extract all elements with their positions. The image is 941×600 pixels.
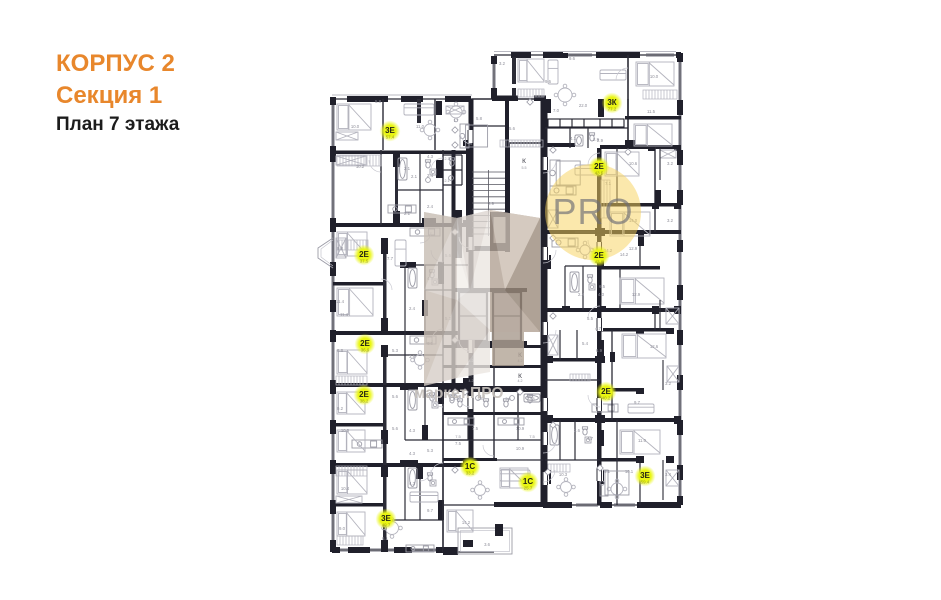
svg-text:25.7: 25.7 — [524, 486, 533, 491]
svg-text:4.2: 4.2 — [469, 379, 474, 383]
svg-text:2.1: 2.1 — [445, 157, 450, 161]
svg-text:37.5: 37.5 — [360, 259, 369, 264]
svg-text:2.3: 2.3 — [578, 292, 585, 297]
svg-text:3.2: 3.2 — [499, 61, 506, 66]
svg-text:9.0: 9.0 — [339, 526, 346, 531]
svg-text:5.4: 5.4 — [582, 341, 589, 346]
svg-text:9.6: 9.6 — [569, 56, 576, 61]
svg-text:6.5: 6.5 — [599, 284, 606, 289]
svg-text:10.5: 10.5 — [341, 428, 350, 433]
svg-text:5.3: 5.3 — [427, 448, 434, 453]
svg-text:10.2: 10.2 — [356, 164, 365, 169]
svg-text:2.1: 2.1 — [404, 166, 411, 171]
svg-text:К: К — [522, 158, 526, 165]
svg-text:2.6: 2.6 — [574, 428, 581, 433]
svg-text:10.4: 10.4 — [341, 486, 350, 491]
svg-text:3.2: 3.2 — [667, 161, 674, 166]
svg-text:6.1: 6.1 — [604, 469, 611, 474]
svg-text:9.8: 9.8 — [337, 246, 344, 251]
svg-text:43.5: 43.5 — [595, 171, 604, 176]
svg-text:5.6: 5.6 — [509, 126, 516, 131]
svg-text:4.3: 4.3 — [409, 481, 416, 486]
svg-text:План 7 этажа: План 7 этажа — [56, 114, 180, 135]
svg-text:14.2: 14.2 — [620, 252, 629, 257]
svg-text:7.5: 7.5 — [455, 434, 461, 439]
svg-text:3.2: 3.2 — [667, 218, 674, 223]
svg-text:10.1: 10.1 — [625, 469, 634, 474]
svg-text:2.4: 2.4 — [427, 204, 434, 209]
svg-text:10.3: 10.3 — [559, 472, 568, 477]
svg-text:49.7: 49.7 — [382, 523, 391, 528]
svg-text:7.5: 7.5 — [472, 426, 479, 431]
svg-text:PRO: PRO — [552, 191, 633, 232]
svg-text:7.5: 7.5 — [529, 434, 535, 439]
svg-text:4.7: 4.7 — [587, 436, 594, 441]
svg-text:22.0: 22.0 — [579, 103, 588, 108]
svg-text:10.9: 10.9 — [516, 426, 525, 431]
svg-text:10.0: 10.0 — [650, 74, 659, 79]
svg-text:17: 17 — [454, 118, 459, 123]
svg-text:2.4: 2.4 — [427, 173, 434, 178]
svg-text:9.7: 9.7 — [634, 400, 641, 405]
svg-text:4.3: 4.3 — [427, 154, 434, 159]
svg-text:4.7: 4.7 — [595, 326, 602, 331]
svg-text:10.9: 10.9 — [516, 446, 525, 451]
svg-text:2.1: 2.1 — [445, 179, 450, 183]
svg-text:2.4: 2.4 — [409, 306, 416, 311]
svg-text:5.6: 5.6 — [392, 426, 399, 431]
svg-text:11.0: 11.0 — [416, 124, 425, 129]
svg-text:7.7: 7.7 — [387, 256, 394, 261]
svg-text:2.1: 2.1 — [404, 211, 411, 216]
svg-text:3.4: 3.4 — [665, 472, 672, 477]
svg-text:9.7: 9.7 — [427, 508, 434, 513]
svg-text:36.9: 36.9 — [361, 348, 370, 353]
svg-text:3.9: 3.9 — [409, 354, 416, 359]
svg-text:5.3: 5.3 — [392, 348, 399, 353]
svg-text:11.5: 11.5 — [647, 109, 656, 114]
svg-text:77.2: 77.2 — [608, 107, 617, 112]
svg-text:12.6: 12.6 — [650, 344, 659, 349]
svg-text:11.4: 11.4 — [340, 312, 349, 317]
svg-text:38.2: 38.2 — [360, 399, 369, 404]
svg-text:9.2: 9.2 — [337, 406, 344, 411]
svg-text:40.2: 40.2 — [602, 396, 611, 401]
svg-text:2.9: 2.9 — [488, 201, 495, 206]
svg-text:11.4: 11.4 — [336, 299, 345, 304]
svg-text:5.8: 5.8 — [476, 116, 483, 121]
svg-text:7.0: 7.0 — [553, 108, 560, 113]
svg-text:5.8: 5.8 — [375, 99, 382, 104]
svg-text:57.4: 57.4 — [386, 135, 395, 140]
svg-text:4.3: 4.3 — [409, 428, 416, 433]
svg-text:33.2: 33.2 — [466, 471, 475, 476]
svg-text:43.9: 43.9 — [595, 260, 604, 265]
svg-text:3.2: 3.2 — [665, 381, 672, 386]
svg-text:маркет.ПРО: маркет.ПРО — [414, 385, 503, 402]
svg-text:5.5: 5.5 — [522, 166, 527, 170]
svg-text:2.1: 2.1 — [411, 174, 418, 179]
svg-text:4.2: 4.2 — [518, 379, 523, 383]
svg-text:10.0: 10.0 — [351, 124, 360, 129]
svg-text:КОРПУС 2: КОРПУС 2 — [56, 50, 175, 77]
svg-text:6.9: 6.9 — [596, 348, 603, 353]
svg-text:2.9: 2.9 — [597, 138, 604, 143]
svg-text:4.3: 4.3 — [598, 292, 605, 297]
svg-text:7.5: 7.5 — [455, 441, 462, 446]
svg-text:6.1: 6.1 — [382, 536, 389, 541]
svg-text:10.6: 10.6 — [629, 161, 638, 166]
svg-text:9.6: 9.6 — [545, 79, 552, 84]
svg-text:11.0: 11.0 — [638, 438, 647, 443]
svg-text:4.1: 4.1 — [570, 136, 577, 141]
svg-text:5.5: 5.5 — [587, 316, 594, 321]
svg-text:59.4: 59.4 — [641, 480, 650, 485]
svg-text:Секция 1: Секция 1 — [56, 82, 162, 109]
svg-text:12.9: 12.9 — [629, 246, 638, 251]
svg-text:12.9: 12.9 — [632, 292, 641, 297]
svg-text:9.8: 9.8 — [337, 348, 344, 353]
svg-text:3.6: 3.6 — [484, 542, 490, 547]
svg-text:4.3: 4.3 — [409, 451, 416, 456]
svg-text:5.6: 5.6 — [392, 394, 399, 399]
